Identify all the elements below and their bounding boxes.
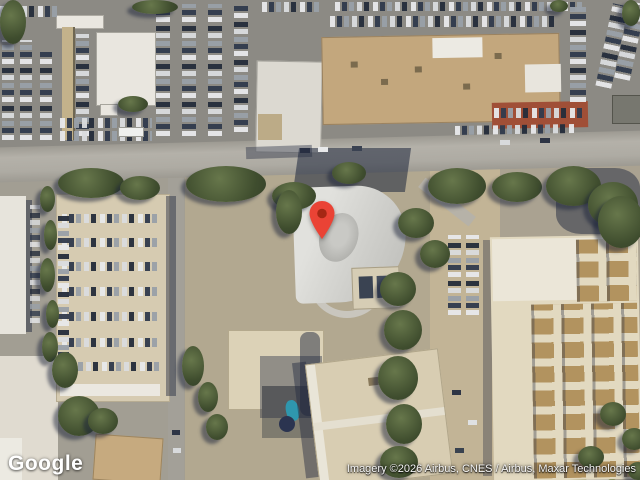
- roof-detail: [415, 66, 422, 72]
- car: [500, 140, 510, 145]
- tree-canopy: [118, 96, 148, 112]
- tree-canopy: [198, 382, 218, 412]
- parked-car-row: [494, 108, 584, 118]
- car: [172, 430, 180, 435]
- parked-car-row: [62, 338, 160, 347]
- roof-detail: [359, 276, 374, 298]
- map-attribution: Imagery ©2026 Airbus, CNES / Airbus, Max…: [347, 463, 636, 475]
- roof-detail: [313, 407, 445, 431]
- parked-car-row: [208, 4, 222, 136]
- tree-canopy: [622, 428, 640, 450]
- rooftop-grid: [576, 239, 637, 302]
- parked-car-row: [40, 52, 52, 140]
- tree-canopy: [386, 404, 422, 444]
- building-roof: [612, 95, 640, 124]
- parked-car-row: [570, 6, 586, 102]
- tree-canopy: [492, 172, 542, 202]
- parked-car-row: [62, 214, 160, 223]
- tree-canopy: [380, 272, 416, 306]
- parked-car-row: [182, 4, 196, 136]
- roof-detail: [381, 79, 388, 85]
- tree-canopy: [598, 196, 640, 248]
- building-roof: [0, 196, 26, 334]
- parked-car-row: [234, 4, 248, 132]
- location-pin-icon: [308, 200, 336, 240]
- parked-car-row: [62, 312, 160, 321]
- tree-canopy: [332, 162, 366, 184]
- building-roof: [490, 235, 640, 480]
- google-logo[interactable]: Google: [8, 452, 83, 476]
- tree-canopy: [378, 356, 418, 400]
- cast-shadow: [246, 145, 312, 159]
- car: [352, 146, 362, 151]
- tree-canopy: [622, 0, 640, 26]
- roof-detail: [495, 53, 502, 59]
- tree-canopy: [428, 168, 486, 204]
- roof-detail: [525, 64, 561, 93]
- parked-car-row: [58, 214, 69, 364]
- location-pin[interactable]: [308, 200, 336, 240]
- car: [318, 147, 328, 152]
- parked-car-row: [64, 362, 159, 371]
- car: [173, 448, 181, 453]
- tree-canopy: [58, 168, 124, 198]
- roof-detail: [463, 83, 470, 89]
- tree-canopy: [46, 300, 59, 328]
- tree-canopy: [186, 166, 266, 202]
- tree-canopy: [550, 0, 568, 12]
- tree-canopy: [88, 408, 118, 434]
- tree-canopy: [182, 346, 204, 386]
- car: [455, 448, 464, 453]
- parked-car-row: [62, 287, 160, 296]
- satellite-map[interactable]: Google Imagery ©2026 Airbus, CNES / Airb…: [0, 0, 640, 480]
- tree-canopy: [0, 0, 26, 44]
- tree-canopy: [600, 402, 626, 426]
- building-roof: [100, 104, 118, 116]
- bus: [118, 127, 144, 137]
- parked-car-row: [62, 262, 160, 271]
- swimming-pool: [279, 416, 295, 432]
- car: [468, 420, 477, 425]
- tree-canopy: [40, 258, 55, 292]
- parked-car-row: [20, 40, 32, 140]
- parked-car-row: [335, 2, 585, 11]
- pin-body: [310, 201, 335, 239]
- tree-canopy: [120, 176, 160, 200]
- parked-car-row: [262, 2, 320, 12]
- cast-shadow: [166, 196, 176, 396]
- tree-canopy: [384, 310, 422, 350]
- tree-canopy: [420, 240, 450, 268]
- tree-canopy: [52, 352, 78, 388]
- parked-car-row: [62, 238, 160, 247]
- parked-car-row: [330, 16, 555, 27]
- tree-canopy: [276, 190, 302, 234]
- building-roof: [258, 114, 282, 140]
- building-roof: [60, 384, 160, 396]
- tree-canopy: [132, 0, 178, 14]
- tree-canopy: [206, 414, 228, 440]
- roof-detail: [432, 37, 482, 58]
- tree-canopy: [398, 208, 434, 238]
- pin-inner-dot: [317, 209, 327, 219]
- parked-car-row: [156, 4, 170, 136]
- parked-car-row: [466, 235, 479, 315]
- tree-canopy: [40, 186, 55, 212]
- parked-car-row: [448, 235, 461, 315]
- roof-detail: [351, 61, 358, 67]
- building-roof: [96, 32, 156, 106]
- parked-car-row: [30, 205, 40, 323]
- car: [540, 138, 550, 143]
- tree-canopy: [44, 220, 57, 250]
- parked-car-row: [2, 40, 14, 140]
- building-roof: [92, 434, 163, 480]
- car: [452, 390, 461, 395]
